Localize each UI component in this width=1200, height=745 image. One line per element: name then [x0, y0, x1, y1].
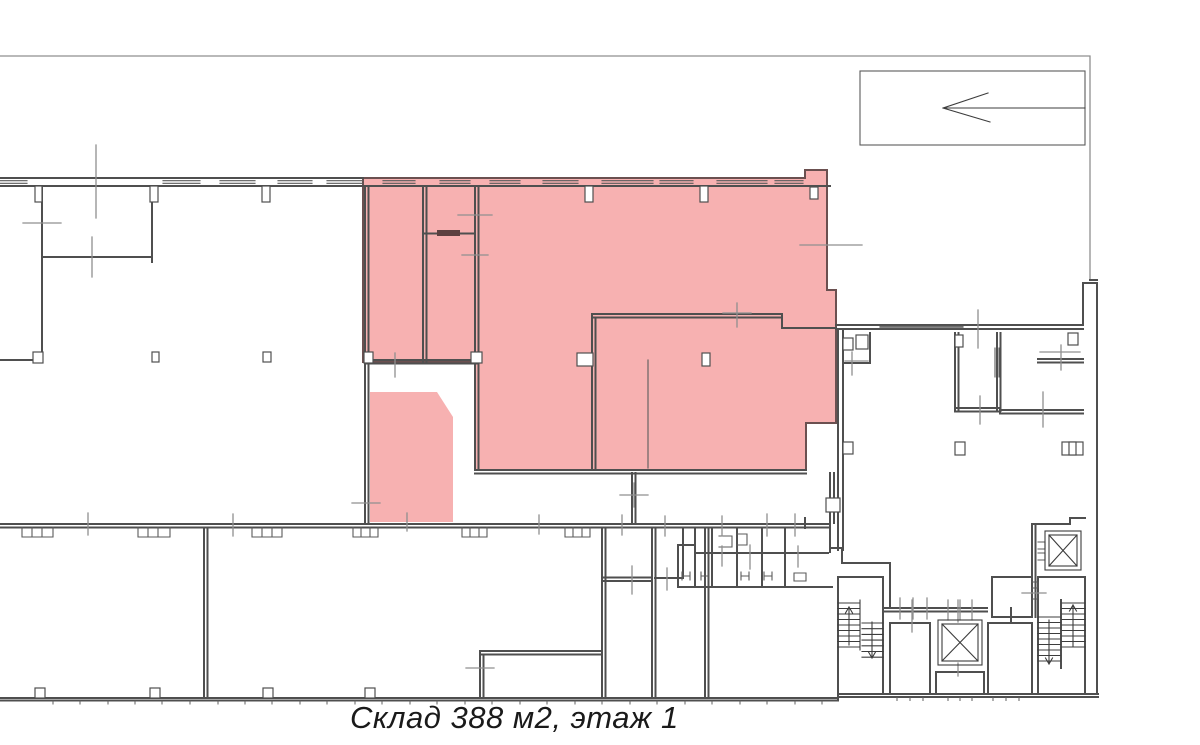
- floor-plan-drawing: [0, 0, 1200, 745]
- elevator-shaft-1: [938, 620, 982, 665]
- elevator-shaft-2: [1045, 531, 1081, 570]
- plan-caption: Склад 388 м2, этаж 1: [350, 700, 870, 736]
- left-arrow-icon: [943, 93, 1085, 122]
- staircase-left: [838, 600, 883, 658]
- entrance-arrow-box: [860, 71, 1085, 145]
- floor-plan-image: Склад 388 м2, этаж 1: [0, 0, 1200, 745]
- warehouse-annex-polygon: [370, 392, 453, 522]
- door-leaf: [437, 230, 460, 236]
